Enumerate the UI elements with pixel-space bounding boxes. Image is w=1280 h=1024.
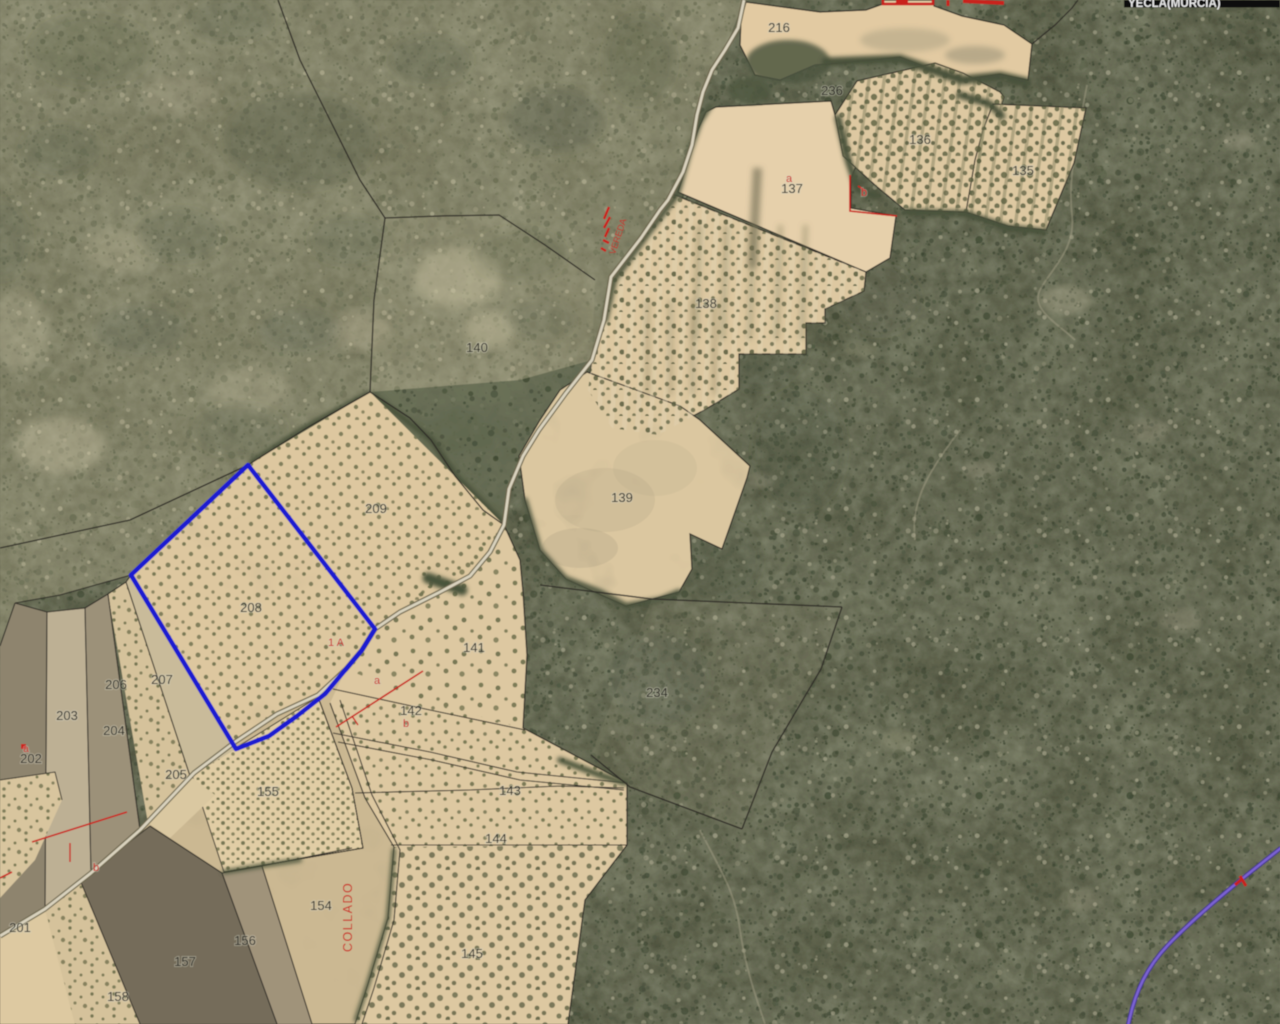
svg-text:140: 140 bbox=[466, 340, 488, 355]
svg-text:141: 141 bbox=[463, 640, 485, 655]
svg-text:205: 205 bbox=[165, 767, 187, 782]
svg-text:COLLADO: COLLADO bbox=[341, 882, 355, 952]
svg-text:144: 144 bbox=[485, 831, 507, 846]
svg-text:139: 139 bbox=[611, 490, 633, 505]
svg-text:155: 155 bbox=[257, 784, 279, 799]
svg-text:157: 157 bbox=[174, 954, 196, 969]
svg-text:158: 158 bbox=[107, 989, 129, 1004]
svg-text:234: 234 bbox=[646, 685, 668, 700]
svg-text:236: 236 bbox=[821, 83, 843, 98]
svg-text:a: a bbox=[23, 744, 29, 755]
svg-text:143: 143 bbox=[499, 783, 521, 798]
svg-text:a: a bbox=[786, 173, 793, 185]
svg-text:b: b bbox=[93, 862, 99, 874]
svg-text:156: 156 bbox=[234, 933, 256, 948]
svg-text:209: 209 bbox=[365, 501, 387, 516]
svg-text:YECLA(MURCIA): YECLA(MURCIA) bbox=[1128, 0, 1221, 10]
svg-text:142: 142 bbox=[400, 703, 422, 718]
svg-text:206: 206 bbox=[105, 677, 127, 692]
svg-text:b: b bbox=[403, 718, 409, 730]
svg-text:b: b bbox=[861, 187, 867, 199]
svg-text:204: 204 bbox=[103, 723, 125, 738]
svg-text:138: 138 bbox=[695, 296, 717, 311]
svg-text:203: 203 bbox=[56, 708, 78, 723]
svg-text:154: 154 bbox=[310, 898, 332, 913]
svg-text:145: 145 bbox=[461, 946, 483, 961]
svg-text:216: 216 bbox=[768, 20, 790, 35]
svg-text:208: 208 bbox=[240, 600, 262, 615]
svg-text:201: 201 bbox=[9, 920, 31, 935]
svg-text:a: a bbox=[374, 675, 381, 687]
svg-text:207: 207 bbox=[151, 672, 173, 687]
svg-text:136: 136 bbox=[909, 132, 931, 147]
svg-text:135: 135 bbox=[1012, 163, 1034, 178]
svg-text:1 A: 1 A bbox=[328, 637, 345, 649]
